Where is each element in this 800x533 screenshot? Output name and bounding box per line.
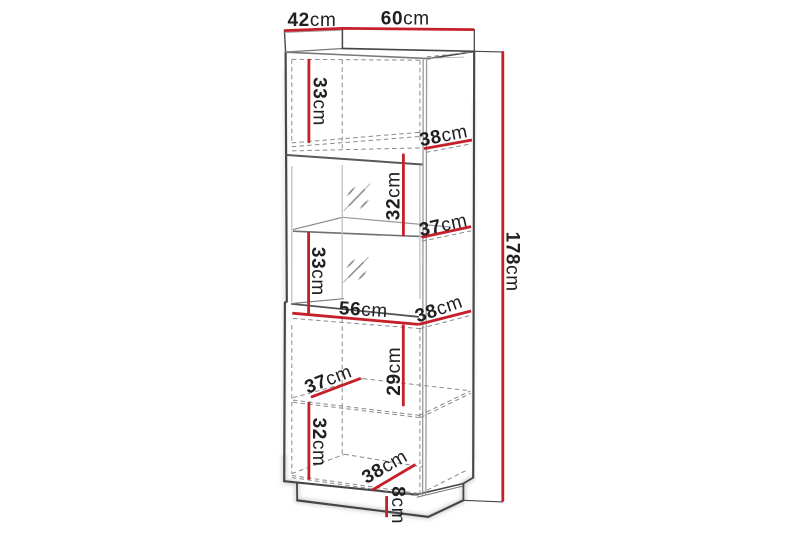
svg-text:32cm: 32cm [383,171,404,220]
svg-text:56cm: 56cm [338,298,388,322]
svg-text:33cm: 33cm [307,247,328,296]
svg-text:8cm: 8cm [387,486,408,524]
svg-text:37cm: 37cm [417,210,469,241]
svg-text:38cm: 38cm [418,121,470,151]
svg-text:29cm: 29cm [384,347,405,396]
svg-text:178cm: 178cm [502,232,523,292]
svg-text:33cm: 33cm [309,77,330,126]
svg-text:60cm: 60cm [381,9,430,30]
svg-text:42cm: 42cm [288,10,337,31]
svg-text:37cm: 37cm [302,361,355,398]
svg-text:32cm: 32cm [308,418,329,467]
